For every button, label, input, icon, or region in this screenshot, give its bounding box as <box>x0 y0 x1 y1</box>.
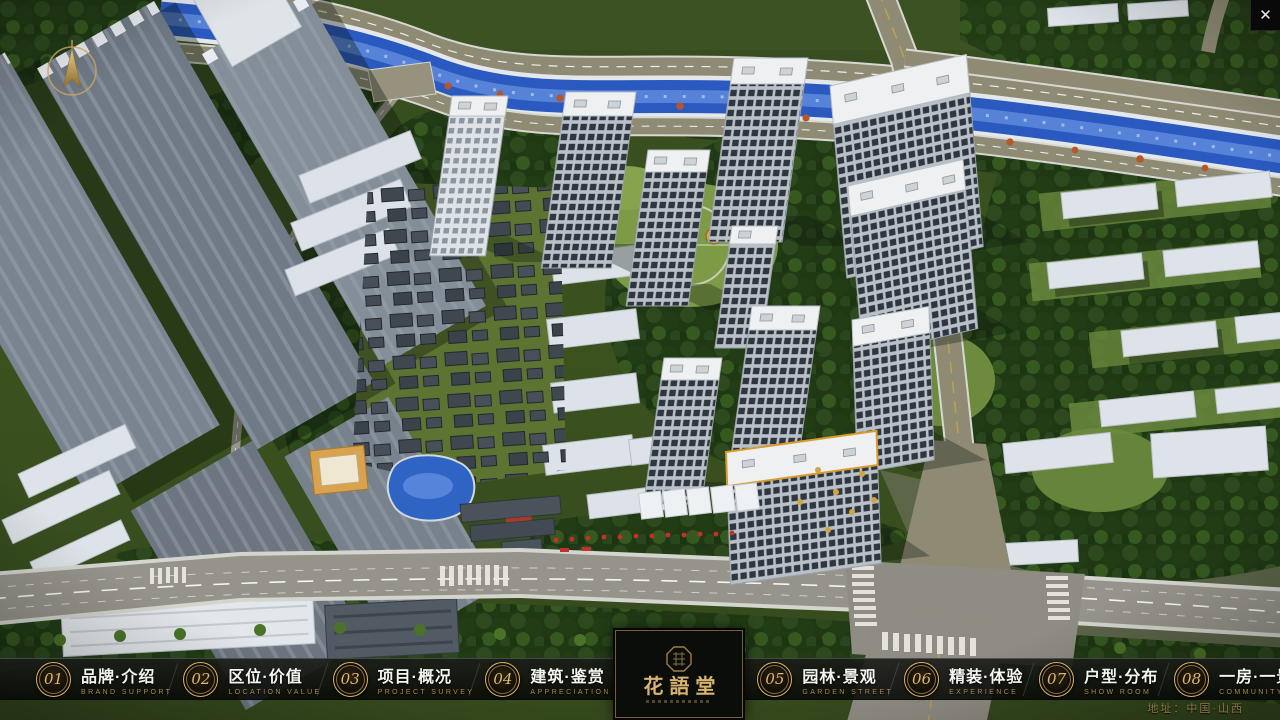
masterplan-render: ✕ 01 品牌·介绍 BRAND SUPPORT 02 区位·价值 LOCATI… <box>0 0 1280 720</box>
close-button[interactable]: ✕ <box>1250 0 1280 31</box>
nav-label-zh: 建筑·鉴赏 <box>530 663 610 687</box>
nav-label-zh: 户型·分布 <box>1084 663 1158 687</box>
nav-label-zh: 精装·体验 <box>949 663 1023 687</box>
nav-label-zh: 区位·价值 <box>228 663 321 687</box>
nav-label-en: COMMUNITY <box>1219 689 1280 696</box>
nav-item-brand[interactable]: 01 品牌·介绍 BRAND SUPPORT <box>26 659 172 699</box>
nav-label-en: APPRECIATION <box>530 689 610 696</box>
nav-item-floorplans[interactable]: 07 户型·分布 SHOW ROOM <box>1029 659 1163 699</box>
nav-badge-05: 05 <box>757 662 792 697</box>
aerial-masterplan <box>0 0 1280 720</box>
nav-badge-04: 04 <box>485 662 520 697</box>
brand-logo-tagline <box>646 700 712 703</box>
bottom-navbar: 01 品牌·介绍 BRAND SUPPORT 02 区位·价值 LOCATION… <box>0 658 1280 700</box>
project-address: 地址：中国·山西 <box>1147 700 1244 716</box>
nav-item-landscape[interactable]: 05 园林·景观 GARDEN STREET <box>747 659 893 699</box>
brand-logo-title: 花語堂 <box>637 676 721 696</box>
nav-item-architecture[interactable]: 04 建筑·鉴赏 APPRECIATION <box>475 659 611 699</box>
nav-label-zh: 品牌·介绍 <box>81 663 172 687</box>
nav-label-zh: 园林·景观 <box>802 663 893 687</box>
nav-label-en: SHOW ROOM <box>1084 689 1158 696</box>
nav-label-en: EXPERIENCE <box>949 689 1023 696</box>
brand-seal-icon <box>666 646 692 672</box>
nav-item-interior[interactable]: 06 精装·体验 EXPERIENCE <box>894 659 1028 699</box>
brand-logo-panel[interactable]: 花語堂 <box>615 630 743 718</box>
nav-label-en: GARDEN STREET <box>802 689 893 696</box>
nav-label-en: PROJECT SURVEY <box>378 689 475 696</box>
nav-label-zh: 一房·一景 <box>1219 663 1280 687</box>
nav-badge-03: 03 <box>333 662 368 697</box>
nav-item-views[interactable]: 08 一房·一景 COMMUNITY <box>1164 659 1280 699</box>
nav-item-project[interactable]: 03 项目·概况 PROJECT SURVEY <box>323 659 475 699</box>
nav-badge-01: 01 <box>36 662 71 697</box>
compass-icon <box>42 38 102 100</box>
nav-badge-06: 06 <box>904 662 939 697</box>
nav-item-location[interactable]: 02 区位·价值 LOCATION VALUE <box>173 659 321 699</box>
nav-label-en: LOCATION VALUE <box>228 689 321 696</box>
nav-label-en: BRAND SUPPORT <box>81 689 172 696</box>
nav-badge-08: 08 <box>1174 662 1209 697</box>
close-icon: ✕ <box>1259 6 1272 24</box>
nav-label-zh: 项目·概况 <box>378 663 475 687</box>
nav-badge-07: 07 <box>1039 662 1074 697</box>
nav-badge-02: 02 <box>183 662 218 697</box>
